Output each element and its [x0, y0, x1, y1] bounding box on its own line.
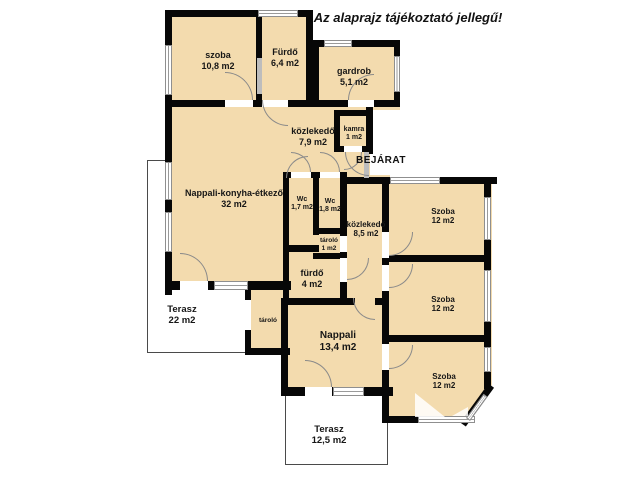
window — [333, 387, 364, 396]
room-label-szoba-bottom: Szoba12 m2 — [432, 372, 456, 391]
room-size: 12 m2 — [432, 216, 455, 225]
room-label-terasz-22: Terasz22 m2 — [167, 304, 196, 326]
room-name: közlekedő — [347, 220, 386, 229]
wall-segment — [283, 245, 319, 252]
door-opening — [382, 344, 389, 370]
wall-segment — [382, 416, 422, 423]
door-leaf — [257, 58, 262, 94]
room-size: 10,8 m2 — [201, 61, 234, 71]
room-size: 12 m2 — [432, 304, 455, 313]
room-size: 5,1 m2 — [340, 77, 368, 87]
wall-segment — [334, 110, 372, 116]
room-label-wc-18: Wc1,8 m2 — [319, 198, 341, 215]
room-label-kozlekedo-85: közlekedő8,5 m2 — [347, 220, 386, 239]
window — [394, 56, 400, 92]
room-name: Nappali — [320, 330, 356, 341]
room-name: tároló — [320, 237, 338, 244]
room-name: szoba — [205, 50, 231, 60]
room-size: 6,4 m2 — [271, 58, 299, 68]
room-size: 1 m2 — [346, 134, 362, 141]
room-name: Wc — [297, 196, 308, 203]
door-opening — [320, 172, 340, 178]
room-name: Nappali-konyha-étkező — [185, 188, 283, 198]
window — [484, 270, 491, 322]
wall-segment — [245, 348, 290, 355]
room-label-szoba-1: szoba10,8 m2 — [201, 50, 234, 71]
window — [484, 347, 491, 372]
door-opening — [305, 387, 332, 396]
room-label-kamra: kamra1 m2 — [344, 126, 365, 143]
wall-segment — [313, 175, 319, 235]
door-opening — [180, 281, 208, 290]
wall-segment — [385, 335, 490, 342]
plan-disclaimer-title: Az alaprajz tájékoztató jellegű! — [314, 10, 503, 25]
room-size: 1,8 m2 — [319, 206, 341, 213]
room-name: közlekedő — [291, 126, 335, 136]
wall-segment — [385, 255, 490, 262]
room-label-szoba-middle: Szoba12 m2 — [431, 295, 455, 314]
window — [165, 45, 172, 95]
window — [165, 212, 172, 252]
wall-segment — [281, 298, 288, 395]
room-label-furdo-1: Fürdő6,4 m2 — [271, 47, 299, 68]
window — [214, 281, 248, 290]
door-opening — [245, 300, 251, 330]
room-label-furdo-4: fürdő4 m2 — [301, 268, 324, 289]
room-size: 12 m2 — [433, 381, 456, 390]
room-name: Terasz — [314, 424, 343, 435]
entrance-label: BEJÁRAT — [356, 155, 406, 166]
room-size: 7,9 m2 — [299, 137, 327, 147]
room-size: 1 m2 — [322, 245, 337, 252]
room-size: 12,5 m2 — [312, 435, 347, 446]
window — [165, 162, 172, 200]
room-label-tarolo-1: tároló1 m2 — [320, 237, 338, 252]
door-opening — [348, 100, 374, 107]
room-label-nappali: Nappali13,4 m2 — [320, 330, 357, 354]
floorplan-canvas: Az alaprajz tájékoztató jellegű! BEJÁRAT… — [0, 0, 640, 480]
room-size: 13,4 m2 — [320, 342, 357, 353]
room-name: Szoba — [431, 207, 455, 216]
wall-segment — [313, 40, 319, 107]
room-label-gardrob: gardrob5,1 m2 — [337, 66, 371, 87]
room-name: Szoba — [431, 295, 455, 304]
room-name: tároló — [259, 317, 277, 324]
room-name: Fürdő — [272, 47, 298, 57]
wall-segment — [375, 298, 388, 305]
room-size: 32 m2 — [221, 199, 247, 209]
room-name: kamra — [344, 126, 365, 133]
room-name: Szoba — [432, 372, 456, 381]
room-size: 8,5 m2 — [354, 229, 379, 238]
room-name: Wc — [325, 198, 336, 205]
room-label-nappali-konyha: Nappali-konyha-étkező32 m2 — [185, 188, 283, 209]
window — [324, 40, 352, 47]
room-label-wc-17: Wc1,7 m2 — [291, 196, 313, 213]
door-opening — [225, 100, 253, 107]
room-label-kozlekedo-79: közlekedő7,9 m2 — [291, 126, 335, 147]
wall-segment — [306, 10, 313, 107]
room-name: fürdő — [301, 268, 324, 278]
room-label-tarolo-small: tároló — [259, 317, 277, 325]
door-opening — [340, 258, 347, 282]
room-size: 1,7 m2 — [291, 204, 313, 211]
window — [258, 10, 298, 17]
door-opening — [382, 265, 389, 291]
room-size: 22 m2 — [169, 315, 196, 326]
room-label-szoba-top: Szoba12 m2 — [431, 207, 455, 226]
room-name: gardrob — [337, 66, 371, 76]
room-size: 4 m2 — [302, 279, 323, 289]
window — [390, 177, 440, 184]
room-name: Terasz — [167, 304, 196, 315]
wall-segment — [283, 298, 347, 305]
room-label-terasz-125: Terasz12,5 m2 — [312, 424, 347, 446]
window — [484, 197, 491, 240]
